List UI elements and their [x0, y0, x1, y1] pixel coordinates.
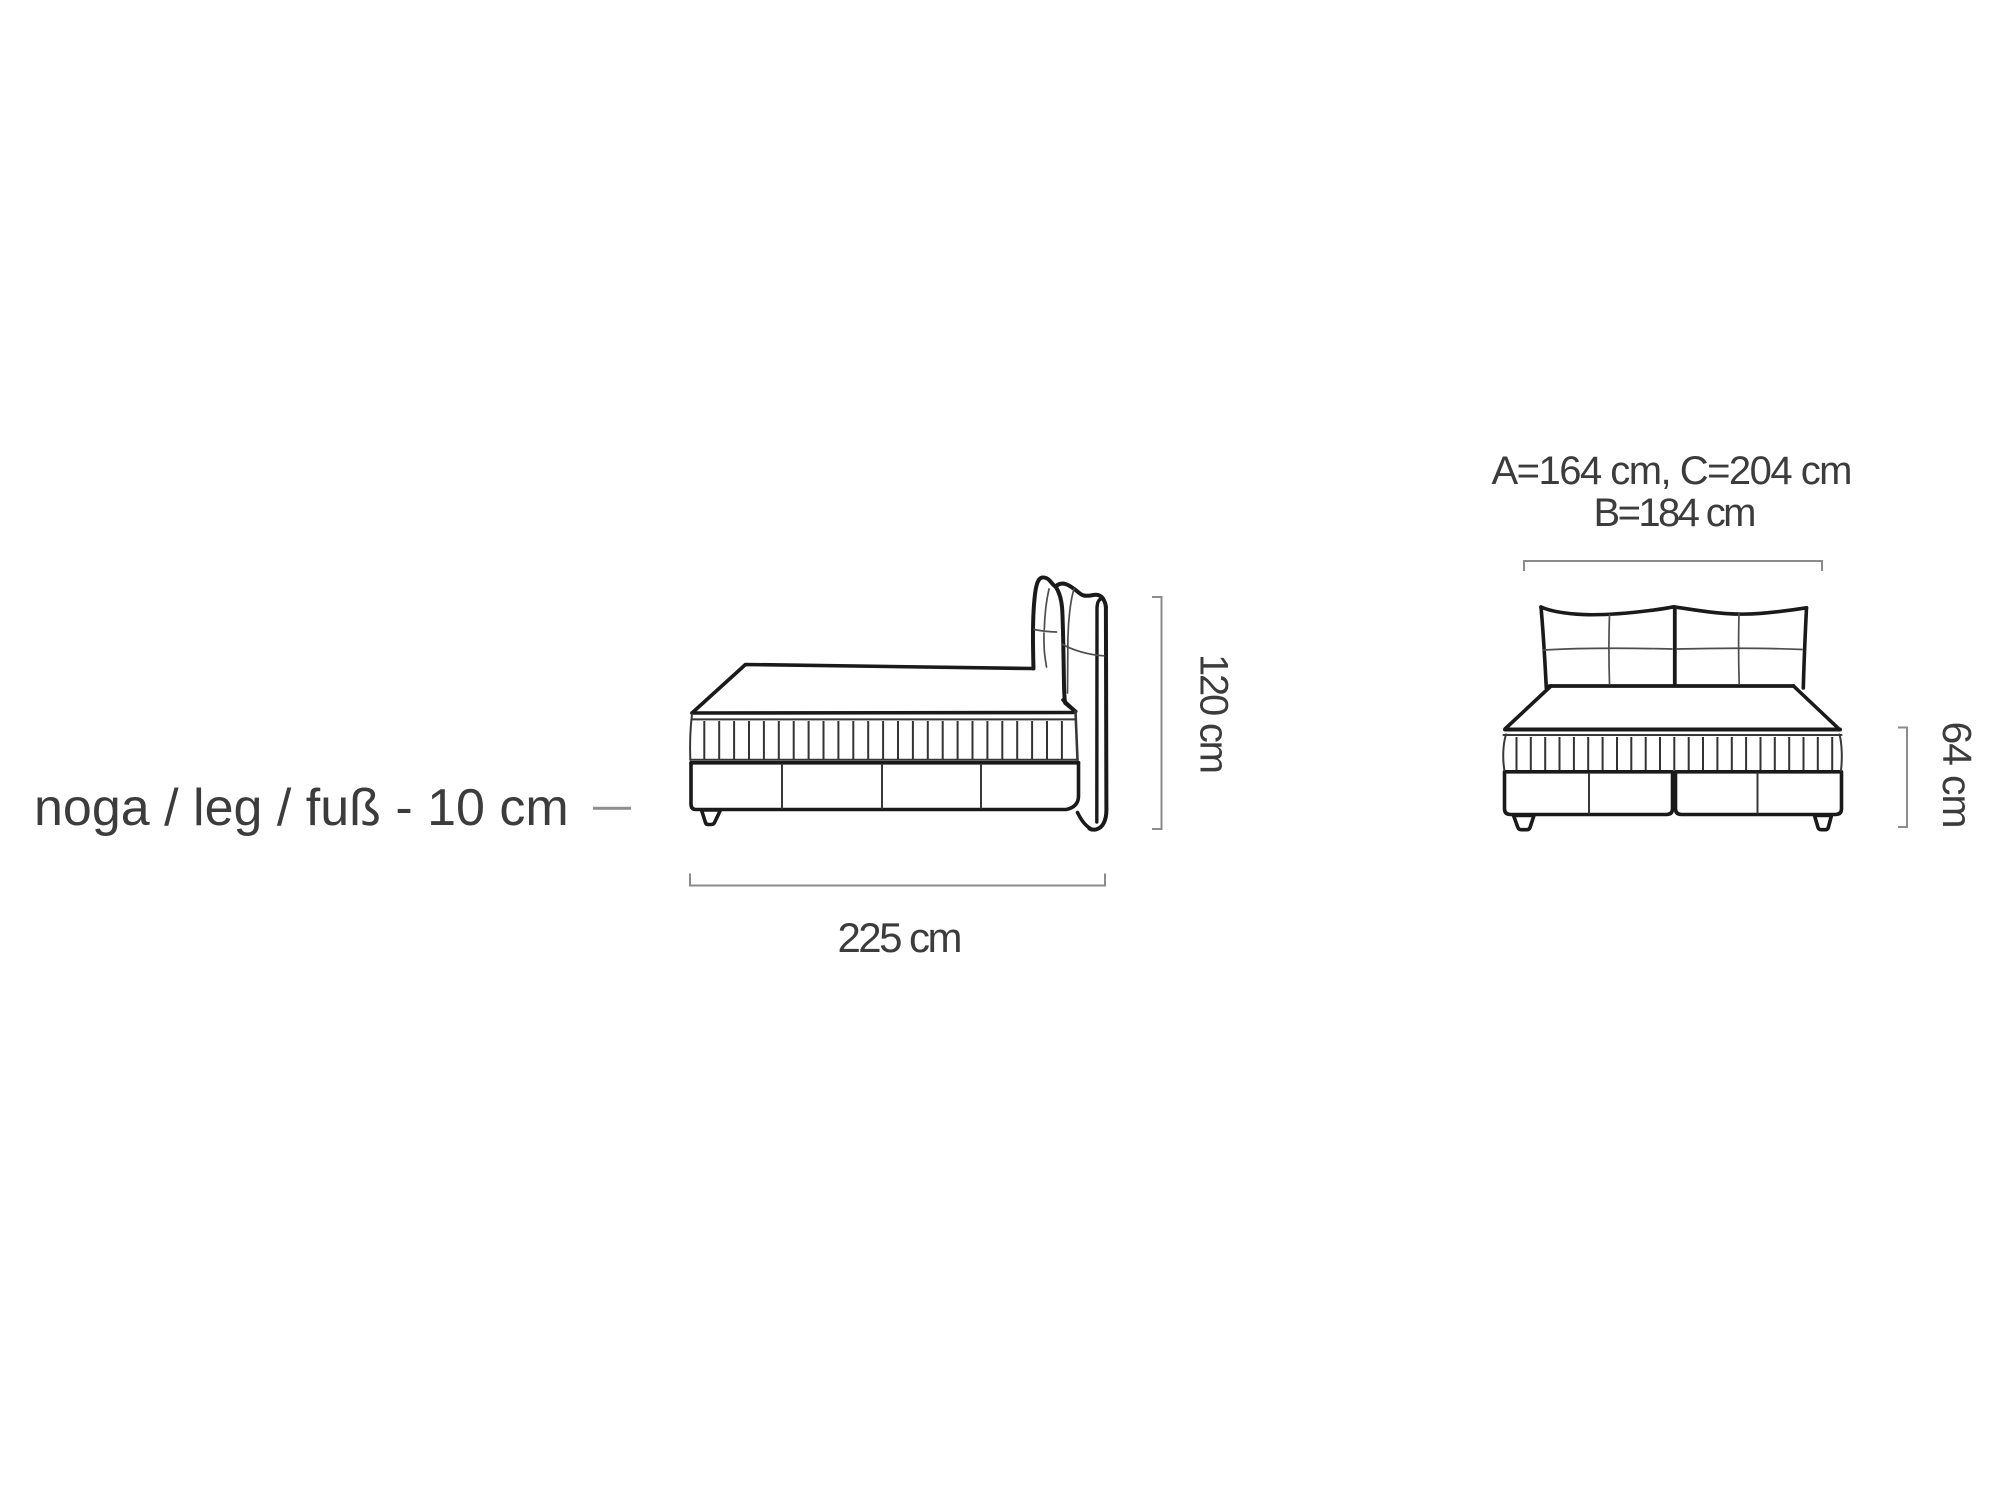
svg-text:noga / leg / fuß - 10 cm: noga / leg / fuß - 10 cm: [34, 779, 569, 837]
svg-text:B=184 cm: B=184 cm: [1594, 491, 1757, 535]
svg-text:A=164 cm, C=204 cm: A=164 cm, C=204 cm: [1492, 449, 1853, 493]
svg-text:120 cm: 120 cm: [1192, 654, 1236, 774]
svg-text:225 cm: 225 cm: [838, 914, 963, 961]
svg-text:64 cm: 64 cm: [1934, 722, 1980, 829]
